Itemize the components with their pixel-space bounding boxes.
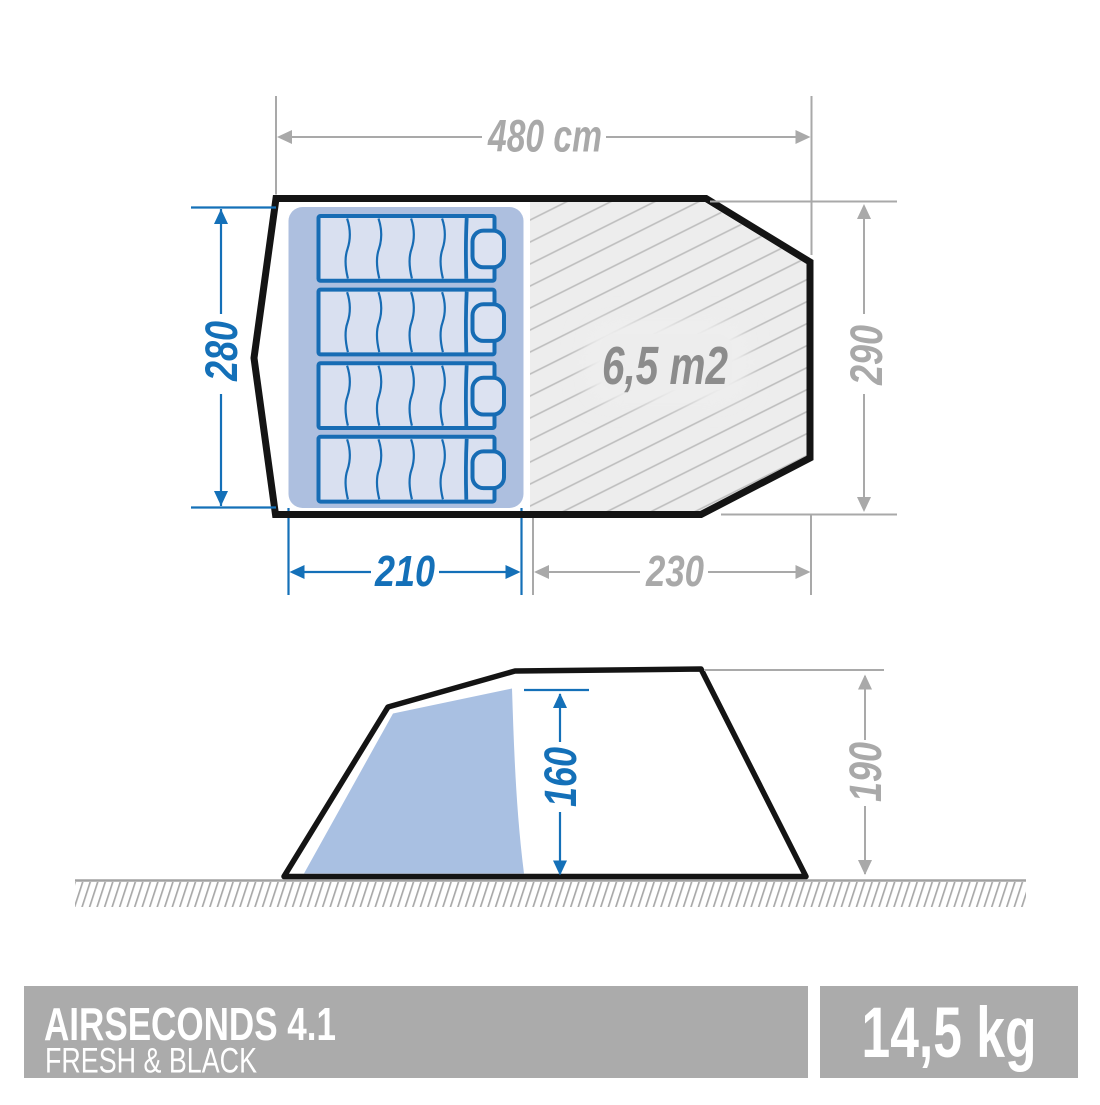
svg-text:190: 190 [840,742,891,802]
svg-text:14,5 kg: 14,5 kg [862,994,1037,1073]
svg-text:230: 230 [645,547,704,596]
svg-text:280: 280 [196,321,247,382]
svg-text:210: 210 [374,547,435,596]
svg-text:160: 160 [535,747,586,807]
svg-text:FRESH & BLACK: FRESH & BLACK [45,1042,257,1081]
svg-text:290: 290 [841,325,892,386]
svg-text:480 cm: 480 cm [487,111,602,162]
svg-text:6,5 m2: 6,5 m2 [602,336,728,396]
